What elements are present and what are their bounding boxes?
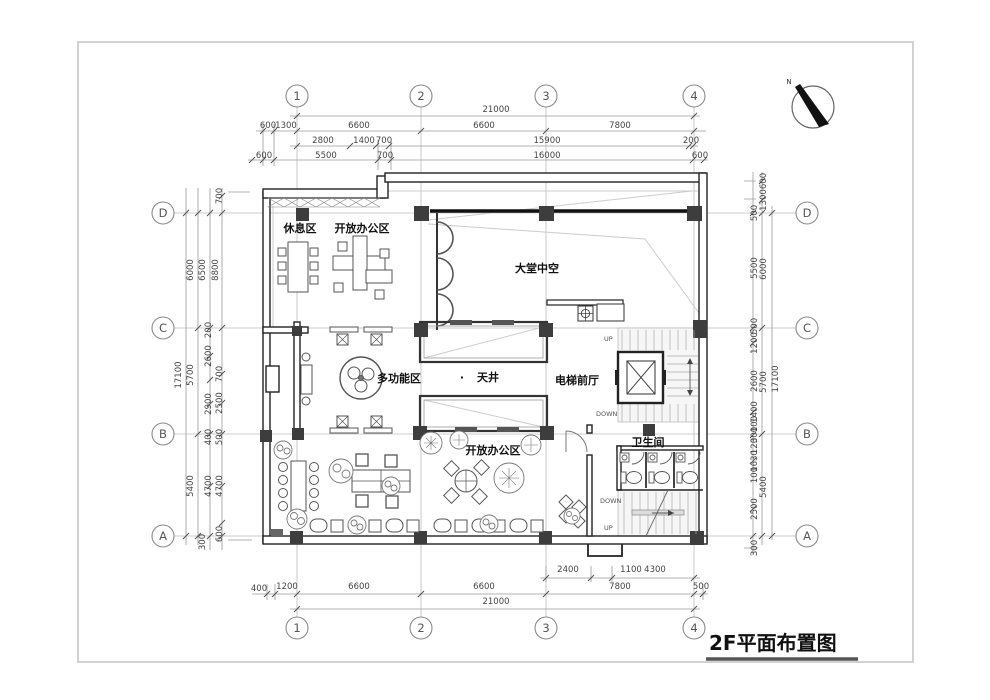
dims-right: 600 1300 500 5500 6000 500 1200 2600 570…	[750, 173, 781, 556]
dim-label: 600	[692, 151, 708, 161]
grid-row-label: B	[159, 427, 167, 441]
stair-up-label: UP	[604, 335, 613, 343]
room-label-rest-area: 休息区	[283, 221, 317, 235]
dim-label: 6600	[473, 582, 495, 592]
dim-label: 500	[750, 318, 760, 334]
floorplan-page: 21000 600 1300 6600 6600 7800 2800 1400 …	[0, 0, 990, 700]
dim-label: 600	[256, 151, 272, 161]
dim-label: 5400	[186, 475, 196, 497]
room-label-elevator-lobby: 电梯前厅	[555, 373, 599, 387]
room-label-multifunction: 多功能区	[377, 371, 421, 385]
window-hatch	[268, 198, 380, 207]
room-label-courtyard: 天井	[477, 370, 499, 384]
dim-label: 500	[215, 429, 225, 445]
dim-label: 21000	[482, 597, 509, 607]
courtyard-dot: ·	[460, 371, 464, 384]
desk-cluster	[352, 454, 410, 508]
dim-label: 16000	[533, 151, 560, 161]
dim-label: 500	[693, 582, 709, 592]
dim-label: 6600	[473, 121, 495, 131]
grid-row-label: D	[159, 206, 168, 220]
dim-label: 8800	[211, 259, 221, 281]
partitions	[430, 211, 700, 330]
grid-row-label: B	[803, 427, 811, 441]
round-table-diamonds	[444, 460, 490, 505]
cabinet-icon	[597, 304, 624, 321]
dim-label: 4300	[644, 565, 666, 575]
stair-up-label: UP	[604, 524, 613, 532]
dim-label: 2600	[204, 345, 214, 367]
grid-col-label: 3	[542, 89, 549, 103]
restroom-area	[620, 452, 700, 488]
plant-icon	[382, 477, 400, 495]
dim-label: 2900	[204, 393, 214, 415]
grid-col-label: 1	[293, 621, 300, 635]
dim-label: 5700	[186, 364, 196, 386]
dim-label: 7800	[609, 582, 631, 592]
grid-row-label: D	[803, 206, 812, 220]
dim-label: 700	[376, 136, 392, 146]
plant-icon	[287, 509, 307, 529]
tree-icon	[494, 463, 524, 493]
room-label-restroom: 卫生间	[632, 435, 665, 449]
dim-label: 2500	[750, 498, 760, 520]
dim-label: 5400	[759, 476, 769, 498]
dim-label: 200	[683, 136, 699, 146]
conference-table	[288, 242, 308, 292]
dim-label: 600	[260, 121, 276, 131]
plant-icon	[329, 459, 353, 483]
dim-label: 1400	[353, 136, 375, 146]
north-arrow-icon: N	[786, 78, 834, 128]
dim-label: 1200	[750, 332, 760, 354]
dim-label: 6600	[348, 121, 370, 131]
dim-label: 5500	[315, 151, 337, 161]
drawing-title: 2F平面布置图	[709, 631, 837, 655]
dim-label: 4700	[215, 475, 225, 497]
stair-down-label: DOWN	[596, 410, 618, 418]
dim-label: 1100	[620, 565, 642, 575]
furniture-layer	[278, 236, 586, 532]
dim-label: 300	[198, 534, 208, 550]
drawing-title-block: 2F平面布置图	[706, 631, 858, 659]
plant-icon	[348, 516, 366, 534]
grid-col-label: 1	[293, 89, 300, 103]
dim-label: 6600	[348, 582, 370, 592]
dims-left: 700 6000 6500 8800 17100 200 2600 5700 7…	[174, 188, 225, 550]
dim-label: 700	[215, 366, 225, 382]
dim-label: 600	[759, 173, 769, 189]
dim-label: 1200	[276, 582, 298, 592]
dim-label: 17100	[771, 365, 781, 392]
dim-label: 300	[750, 540, 760, 556]
dims-top: 21000 600 1300 6600 6600 7800 2800 1400 …	[256, 105, 708, 161]
grid-col-label: 3	[542, 621, 549, 635]
lounge-row	[310, 519, 543, 532]
dim-label: 5700	[759, 371, 769, 393]
grid-row-label: C	[803, 321, 811, 335]
dim-label: 7800	[609, 121, 631, 131]
grid-col-label: 2	[417, 621, 424, 635]
dim-label: 700	[377, 151, 393, 161]
grid-row-label: C	[159, 321, 167, 335]
grid-col-label: 4	[690, 89, 697, 103]
grid-row-label: A	[803, 529, 811, 543]
toilet-icons	[620, 453, 698, 484]
floorplan-canvas: 21000 600 1300 6600 6600 7800 2800 1400 …	[0, 0, 990, 700]
round-table-multifunction	[340, 357, 382, 399]
dim-label: 15900	[533, 136, 560, 146]
dim-label: 500	[750, 205, 760, 221]
grid-col-label: 2	[417, 89, 424, 103]
dim-label: 2500	[215, 392, 225, 414]
dim-label: 400	[251, 584, 267, 594]
dim-label: 21000	[482, 105, 509, 115]
dim-label: 200	[204, 322, 214, 338]
lobby-fixtures	[578, 304, 624, 321]
standing-table	[301, 365, 312, 394]
stair-down-label: DOWN	[600, 497, 622, 505]
tree-icon	[521, 435, 541, 455]
dim-label: 6000	[759, 258, 769, 280]
dims-bottom: 2400 1100 4300 400 1200 6600 6600 7800 5…	[251, 565, 709, 607]
dim-label: 4700	[204, 475, 214, 497]
dim-label: 17100	[174, 361, 184, 388]
dim-label: 700	[215, 188, 225, 204]
grid-col-label: 4	[690, 621, 697, 635]
dim-label: 400	[204, 429, 214, 445]
room-label-open-office-bottom: 开放办公区	[466, 443, 521, 457]
dim-label: 600	[215, 526, 225, 542]
dim-label: 1300	[275, 121, 297, 131]
dim-label: 2800	[312, 136, 334, 146]
pinwheel-desks	[333, 236, 392, 299]
dim-label: 6000	[186, 259, 196, 281]
room-label-open-office-top: 开放办公区	[335, 221, 390, 235]
dim-label: 2400	[557, 565, 579, 575]
plant-icon	[480, 515, 498, 533]
tree-icon	[420, 432, 442, 454]
grid-row-label: A	[159, 529, 167, 543]
long-table	[279, 461, 319, 511]
north-label: N	[786, 78, 791, 86]
plant-icon	[564, 508, 580, 524]
dim-label: 6500	[198, 259, 208, 281]
room-label-atrium: 大堂中空	[515, 261, 559, 275]
dim-label: 1300	[759, 189, 769, 211]
plant-icon	[274, 441, 292, 459]
